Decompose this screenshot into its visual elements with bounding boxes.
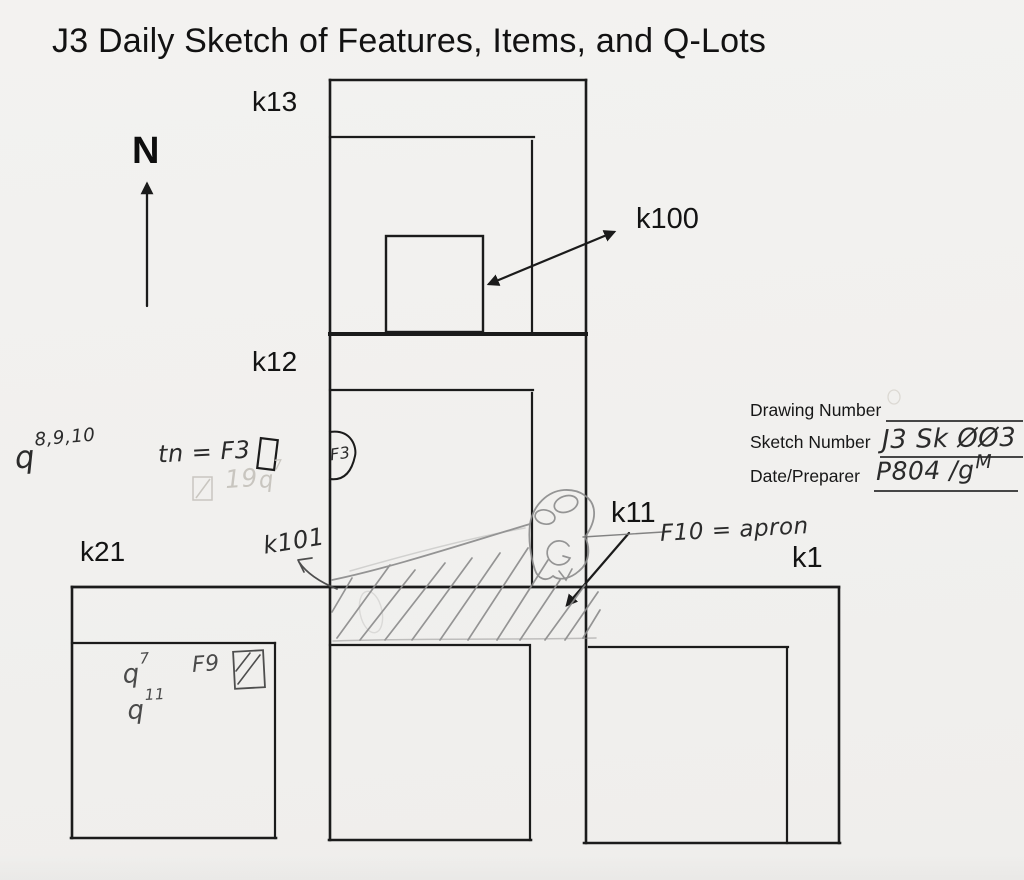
k21-q11-annotation: q 11 bbox=[126, 685, 166, 717]
unit-label-k21: k21 bbox=[80, 536, 125, 568]
apron-hatching bbox=[332, 548, 600, 640]
k100-pointer-arrow bbox=[489, 232, 614, 284]
k100-square bbox=[386, 236, 483, 332]
k21-q7-annotation: q 7 bbox=[121, 649, 151, 681]
unit-label-k12: k12 bbox=[252, 346, 297, 378]
f3-bubble-text: F3 bbox=[329, 443, 352, 465]
sketch-number-value: J3 Sk ØØ3 bbox=[882, 423, 1017, 455]
item-label-k100: k100 bbox=[636, 203, 699, 236]
faint-q7-annotation: q 7 bbox=[257, 457, 284, 485]
apron-stones-blob bbox=[529, 490, 594, 580]
faint-19-annotation: 19 bbox=[224, 463, 259, 494]
faint-drawing-number-smudge bbox=[888, 390, 900, 404]
page-title: J3 Daily Sketch of Features, Items, and … bbox=[52, 22, 766, 61]
sketch-number-label: Sketch Number bbox=[750, 432, 871, 453]
q-lot-list-annotation: q 8,9,10 bbox=[13, 424, 98, 467]
unit-label-k13: k13 bbox=[252, 86, 297, 118]
date-preparer-value: P804 /g M bbox=[876, 455, 993, 486]
scanned-sketch-page: J3 Daily Sketch of Features, Items, and … bbox=[0, 0, 1024, 880]
north-label: N bbox=[132, 130, 159, 173]
k21-f9-annotation: F9 bbox=[191, 651, 220, 678]
k11-pointer-arrow bbox=[567, 533, 629, 605]
unit-label-k1: k1 bbox=[792, 542, 823, 575]
date-preparer-label: Date/Preparer bbox=[750, 466, 860, 487]
dark-pencil-marks bbox=[233, 558, 337, 689]
blob-to-f10-line bbox=[583, 532, 663, 537]
unit-label-k11: k11 bbox=[611, 497, 656, 530]
drawing-number-label: Drawing Number bbox=[750, 400, 881, 421]
